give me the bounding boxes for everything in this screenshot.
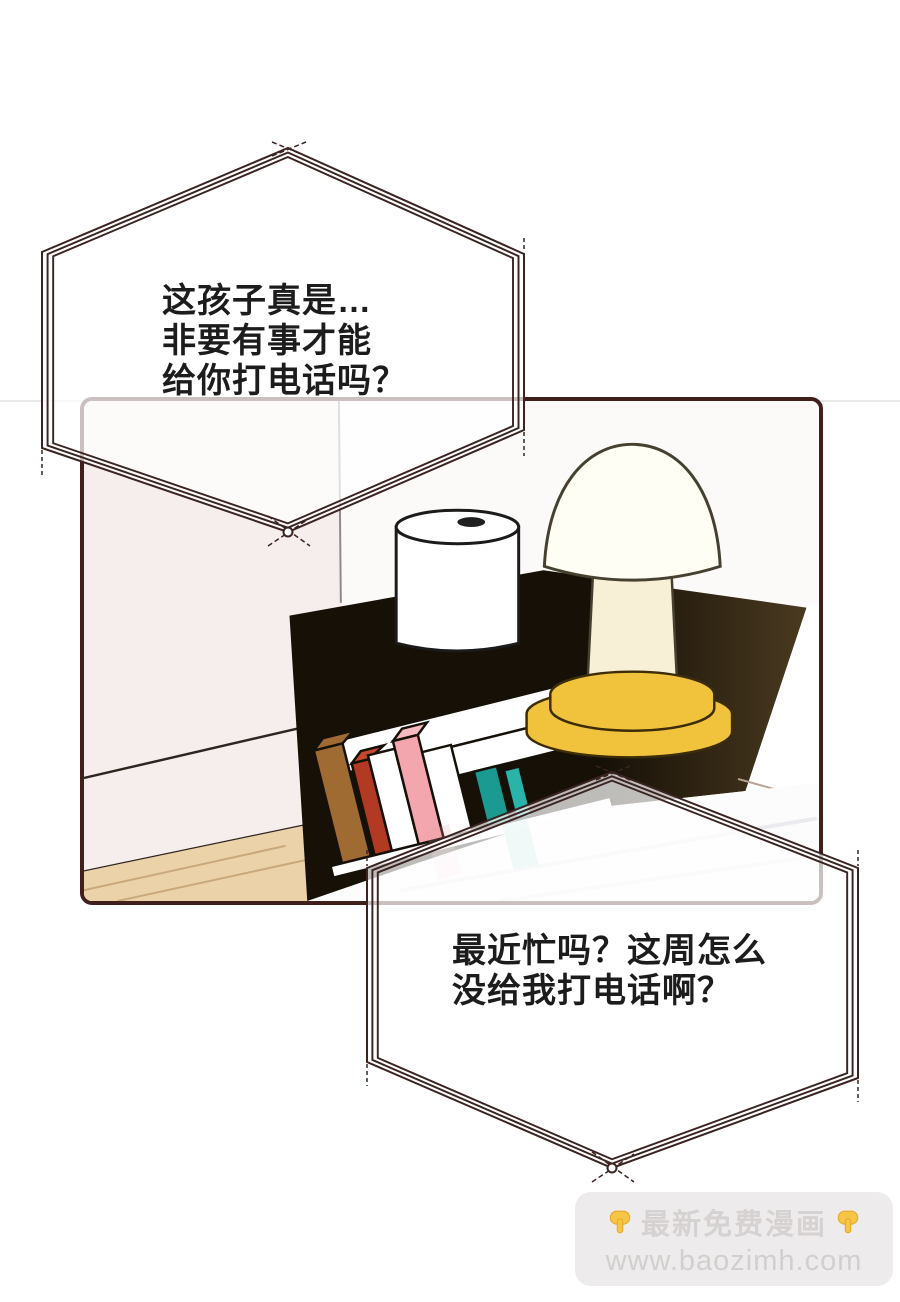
speech-line: 没给我打电话啊？ xyxy=(452,971,767,1011)
down-pointing-hand-icon xyxy=(835,1209,861,1235)
lamp-base xyxy=(527,672,732,758)
down-pointing-hand-icon xyxy=(607,1209,633,1235)
speech-line: 非要有事才能 xyxy=(162,321,407,361)
tissue-roll xyxy=(396,510,519,651)
speech-line: 最近忙吗？这周怎么 xyxy=(452,931,767,971)
bubble-vertex-knot xyxy=(608,1164,617,1173)
watermark-site-url: www.baozimh.com xyxy=(606,1245,863,1278)
watermark-title: 最新免费漫画 xyxy=(641,1201,827,1243)
speech-line: 给你打电话吗？ xyxy=(162,361,407,401)
speech-text-bottom: 最近忙吗？这周怎么 没给我打电话啊？ xyxy=(452,931,767,1011)
cylinder-hole xyxy=(457,517,485,527)
speech-line: 这孩子真是… xyxy=(162,281,407,321)
speech-text-top: 这孩子真是… 非要有事才能 给你打电话吗？ xyxy=(162,281,407,401)
watermark: 最新免费漫画 www.baozimh.com xyxy=(575,1192,893,1286)
comic-panel xyxy=(80,397,823,905)
bedroom-illustration xyxy=(84,401,819,901)
